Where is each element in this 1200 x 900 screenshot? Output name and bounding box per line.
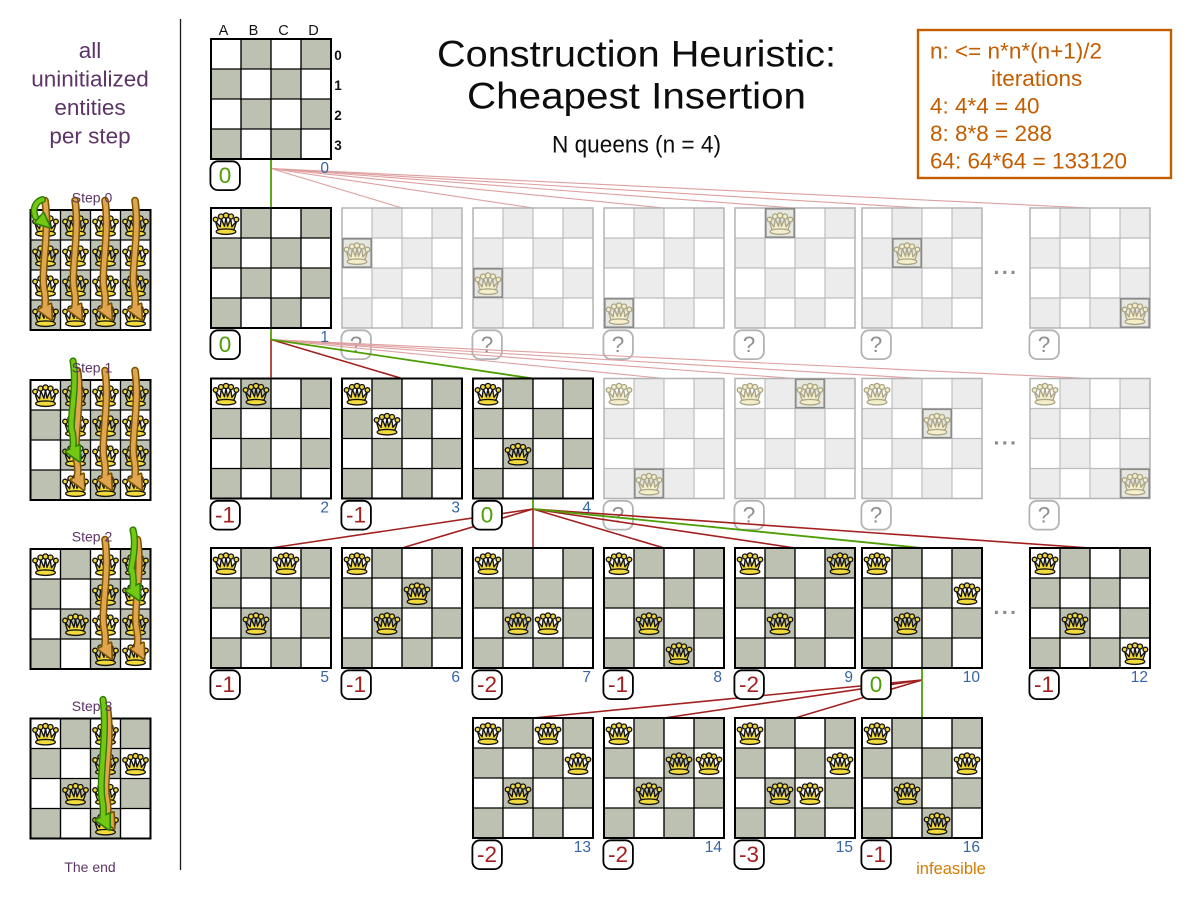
svg-text:?: ?: [870, 332, 883, 357]
svg-text:1: 1: [320, 329, 329, 346]
svg-text:14: 14: [705, 839, 723, 856]
svg-text:?: ?: [743, 332, 756, 357]
svg-text:0: 0: [219, 163, 232, 188]
svg-text:all: all: [79, 38, 102, 63]
svg-text:64: 64*64 = 133120: 64: 64*64 = 133120: [930, 149, 1127, 174]
svg-text:...: ...: [993, 427, 1018, 450]
svg-text:?: ?: [870, 502, 883, 527]
svg-text:2: 2: [320, 500, 329, 517]
svg-text:Step 2: Step 2: [72, 529, 113, 545]
svg-text:Step 0: Step 0: [72, 190, 113, 206]
svg-text:-1: -1: [346, 502, 366, 527]
svg-text:Step 3: Step 3: [72, 698, 113, 714]
svg-text:-2: -2: [477, 842, 497, 867]
svg-text:7: 7: [582, 669, 591, 686]
svg-text:4: 4*4 = 40: 4: 4*4 = 40: [930, 94, 1039, 119]
svg-text:?: ?: [1038, 332, 1051, 357]
svg-text:0: 0: [870, 672, 883, 697]
svg-text:10: 10: [963, 669, 981, 686]
svg-text:0: 0: [219, 332, 232, 357]
svg-text:0: 0: [320, 160, 329, 177]
svg-text:16: 16: [963, 839, 980, 856]
svg-text:iterations: iterations: [991, 66, 1082, 91]
svg-text:-1: -1: [346, 672, 366, 697]
svg-text:8: 8*8 = 288: 8: 8*8 = 288: [930, 121, 1052, 146]
svg-text:6: 6: [451, 669, 460, 686]
svg-text:?: ?: [612, 332, 625, 357]
svg-text:uninitialized: uninitialized: [31, 67, 149, 92]
svg-text:entities: entities: [54, 95, 125, 120]
svg-text:per step: per step: [49, 124, 130, 149]
svg-text:15: 15: [836, 839, 853, 856]
svg-text:D: D: [308, 23, 318, 39]
svg-text:-3: -3: [739, 842, 759, 867]
svg-text:...: ...: [993, 256, 1018, 279]
svg-text:B: B: [249, 23, 259, 39]
svg-text:8: 8: [713, 669, 722, 686]
svg-text:?: ?: [1038, 502, 1051, 527]
svg-text:-1: -1: [215, 672, 235, 697]
svg-text:-2: -2: [477, 672, 497, 697]
svg-text:The end: The end: [64, 859, 115, 875]
svg-text:0: 0: [334, 48, 342, 63]
svg-text:A: A: [219, 23, 229, 39]
svg-text:-2: -2: [608, 842, 628, 867]
svg-text:0: 0: [481, 502, 494, 527]
svg-text:13: 13: [574, 839, 591, 856]
svg-text:3: 3: [451, 500, 460, 517]
svg-text:N queens (n = 4): N queens (n = 4): [552, 132, 721, 159]
svg-text:Construction Heuristic:: Construction Heuristic:: [437, 33, 836, 75]
svg-text:3: 3: [334, 138, 342, 153]
svg-text:...: ...: [993, 596, 1018, 619]
svg-text:-1: -1: [215, 502, 235, 527]
svg-text:Cheapest Insertion: Cheapest Insertion: [467, 75, 806, 117]
svg-text:12: 12: [1131, 669, 1148, 686]
svg-text:Step 1: Step 1: [72, 360, 113, 376]
svg-text:-1: -1: [866, 842, 886, 867]
svg-text:5: 5: [320, 669, 329, 686]
svg-text:-2: -2: [739, 672, 759, 697]
svg-text:4: 4: [582, 500, 591, 517]
svg-text:1: 1: [334, 78, 342, 93]
svg-text:9: 9: [844, 669, 853, 686]
svg-text:n: <= n*n*(n+1)/2: n: <= n*n*(n+1)/2: [930, 39, 1102, 64]
svg-text:C: C: [278, 23, 288, 39]
svg-text:infeasible: infeasible: [916, 860, 986, 878]
svg-text:2: 2: [334, 108, 342, 123]
svg-text:-1: -1: [1034, 672, 1054, 697]
svg-text:-1: -1: [608, 672, 628, 697]
